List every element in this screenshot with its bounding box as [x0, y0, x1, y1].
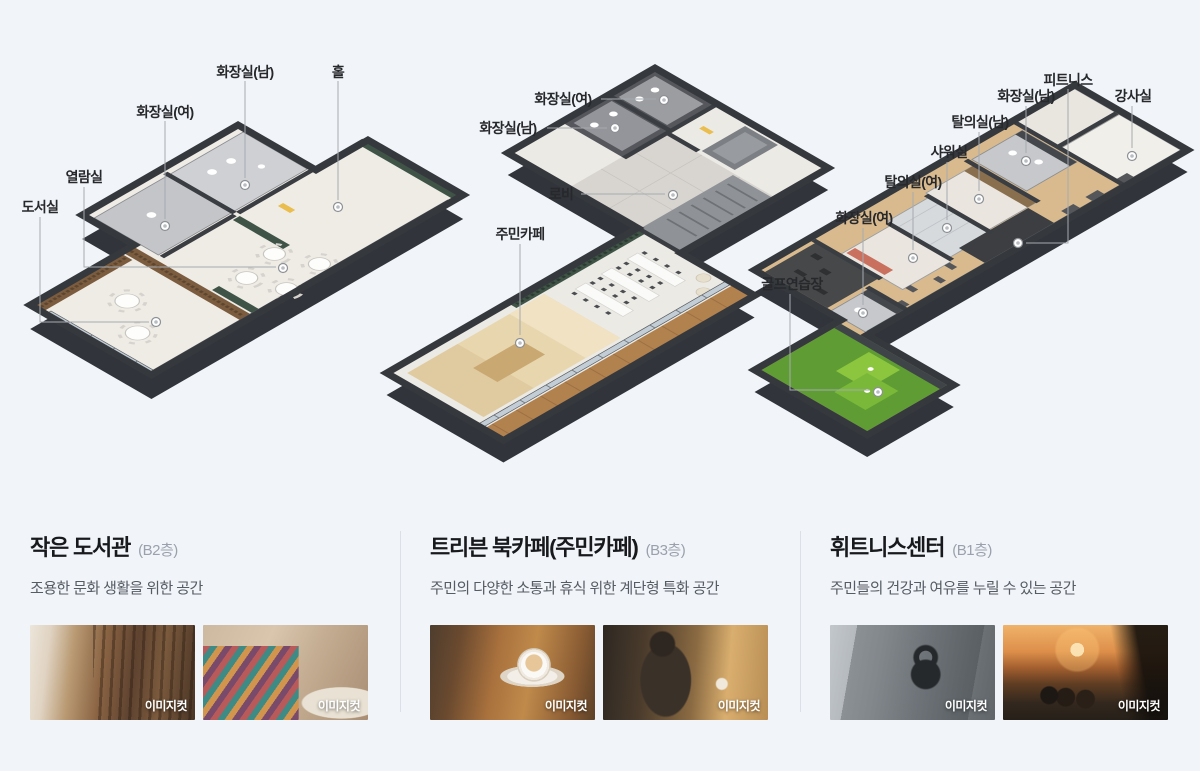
section-photos: 이미지컷 이미지컷	[830, 625, 1170, 720]
plan3-label-restroom-w: 화장실(여)	[835, 208, 892, 228]
section-floor-note: (B1층)	[952, 539, 992, 560]
plan1-label-restroom-m: 화장실(남)	[216, 62, 273, 82]
plan2-label-restroom-m: 화장실(남)	[479, 118, 536, 138]
section-book-cafe: 트리븐 북카페(주민카페) (B3층) 주민의 다양한 소통과 휴식 위한 계단…	[430, 530, 770, 720]
library-photo-girl-bookshelf: 이미지컷	[30, 625, 195, 720]
section-title-row: 휘트니스센터 (B1층)	[830, 530, 1170, 562]
section-title: 휘트니스센터	[830, 530, 944, 562]
image-cut-badge: 이미지컷	[718, 697, 760, 714]
plan3-label-restroom-m: 화장실(남)	[997, 86, 1054, 106]
cafe-photo-coffee-cup: 이미지컷	[430, 625, 595, 720]
plan3-label-locker-w: 탈의실(여)	[884, 172, 941, 192]
section-title-row: 작은 도서관 (B2층)	[30, 530, 370, 562]
floorplans-illustration	[0, 0, 1200, 520]
section-photos: 이미지컷 이미지컷	[430, 625, 770, 720]
image-cut-badge: 이미지컷	[545, 697, 587, 714]
section-description: 조용한 문화 생활을 위한 공간	[30, 577, 370, 598]
section-title-row: 트리븐 북카페(주민카페) (B3층)	[430, 530, 770, 562]
image-cut-badge: 이미지컷	[318, 697, 360, 714]
section-fitness-center: 휘트니스센터 (B1층) 주민들의 건강과 여유를 누릴 수 있는 공간 이미지…	[830, 530, 1170, 720]
section-divider	[800, 531, 801, 712]
plan1-label-reading-room: 열람실	[66, 167, 103, 187]
plan2-label-resident-cafe: 주민카페	[495, 224, 544, 244]
section-title: 트리븐 북카페(주민카페)	[430, 530, 638, 562]
cafe-photo-woman-tablet: 이미지컷	[603, 625, 768, 720]
section-description: 주민들의 건강과 여유를 누릴 수 있는 공간	[830, 577, 1170, 598]
fitness-photo-kettlebell-mat: 이미지컷	[830, 625, 995, 720]
section-divider	[400, 531, 401, 712]
plan2-label-lobby: 로비	[549, 184, 574, 204]
fitness-photo-gym-sunset: 이미지컷	[1003, 625, 1168, 720]
library-photo-child-writing: 이미지컷	[203, 625, 368, 720]
community-facilities-page: 도서실 열람실 화장실(여) 화장실(남) 홀 화장실(여) 화장실(남) 로비…	[0, 0, 1200, 771]
image-cut-badge: 이미지컷	[145, 697, 187, 714]
image-cut-badge: 이미지컷	[945, 697, 987, 714]
library-floorplan	[0, 95, 468, 399]
section-description: 주민의 다양한 소통과 휴식 위한 계단형 특화 공간	[430, 577, 770, 598]
plan3-label-locker-m: 탈의실(남)	[951, 112, 1008, 132]
plan3-label-shower-room: 샤워실	[931, 142, 968, 162]
image-cut-badge: 이미지컷	[1118, 697, 1160, 714]
section-small-library: 작은 도서관 (B2층) 조용한 문화 생활을 위한 공간 이미지컷 이미지컷	[30, 530, 370, 720]
plan3-label-instructor-room: 강사실	[1115, 86, 1152, 106]
plan3-label-golf-range: 골프연습장	[761, 274, 822, 294]
plan2-label-restroom-w: 화장실(여)	[534, 89, 591, 109]
plan1-label-hall: 홀	[332, 62, 344, 82]
plan1-label-library-room: 도서실	[22, 197, 59, 217]
section-title: 작은 도서관	[30, 530, 130, 562]
section-photos: 이미지컷 이미지컷	[30, 625, 370, 720]
section-floor-note: (B2층)	[138, 539, 178, 560]
plan1-label-restroom-w: 화장실(여)	[136, 102, 193, 122]
section-floor-note: (B3층)	[646, 539, 686, 560]
